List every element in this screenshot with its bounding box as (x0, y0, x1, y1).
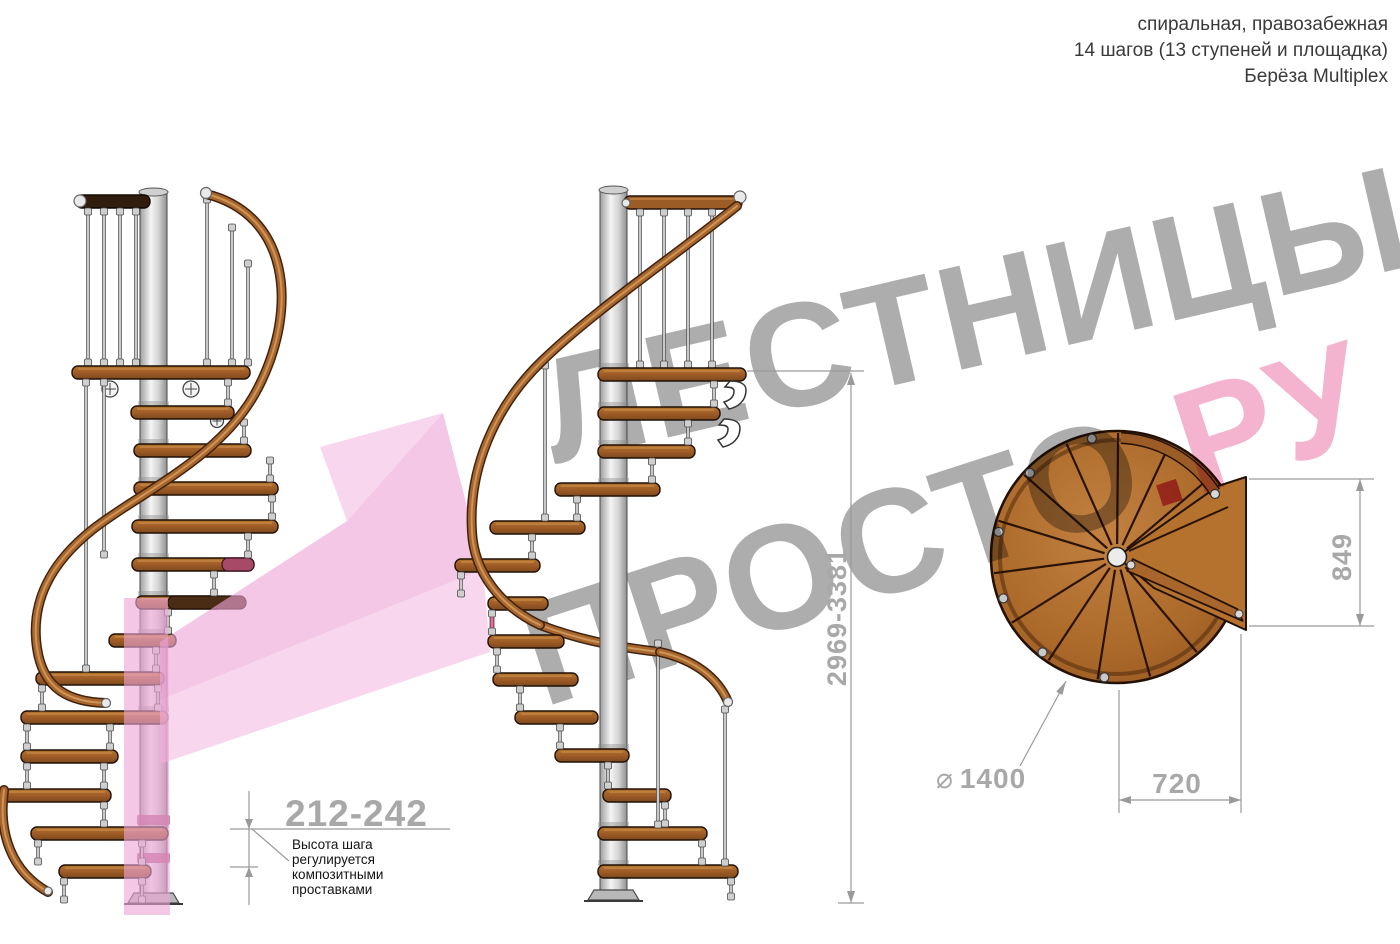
right-staircase-elevation (455, 186, 746, 901)
elevation-drawing-layer (0, 0, 1400, 944)
staircase-drawing-page: ЛЕСТНИЦЫ ПРОСТО.РУ спиральная, правозабе… (0, 0, 1400, 944)
